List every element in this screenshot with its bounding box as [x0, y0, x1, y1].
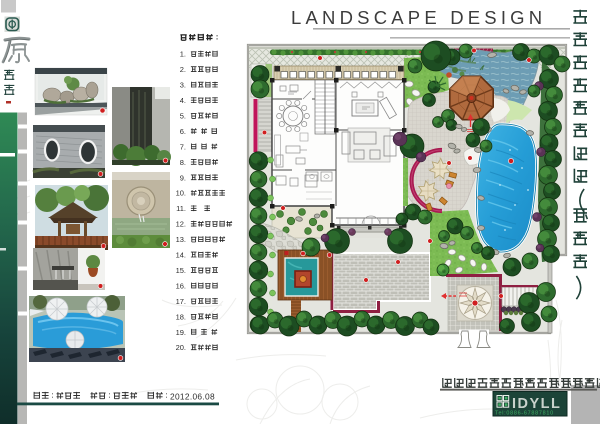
svg-text:2.: 2. [180, 65, 186, 74]
svg-text:9.: 9. [180, 173, 186, 182]
svg-text:17.: 17. [176, 297, 186, 306]
svg-text:3.: 3. [180, 81, 186, 90]
svg-text:2012.06.08: 2012.06.08 [170, 392, 215, 402]
svg-text:15.: 15. [176, 266, 186, 275]
svg-text:20.: 20. [176, 343, 186, 352]
svg-text:13.: 13. [176, 235, 186, 244]
svg-text:7.: 7. [180, 142, 186, 151]
svg-text:8.: 8. [180, 158, 186, 167]
svg-text:16.: 16. [176, 281, 186, 290]
svg-text:Tel:0886-67887810: Tel:0886-67887810 [495, 411, 554, 417]
svg-text:6.: 6. [180, 127, 186, 136]
svg-text:19.: 19. [176, 328, 186, 337]
svg-text:11.: 11. [176, 204, 186, 213]
svg-text:18.: 18. [176, 312, 186, 321]
svg-text:1.: 1. [180, 50, 186, 59]
svg-text:14.: 14. [176, 251, 186, 260]
svg-text:LANDSCAPE DESIGN: LANDSCAPE DESIGN [291, 7, 546, 28]
svg-text:10.: 10. [176, 189, 186, 198]
svg-text:12.: 12. [176, 220, 186, 229]
svg-text:5.: 5. [180, 112, 186, 121]
svg-text:4.: 4. [180, 96, 186, 105]
